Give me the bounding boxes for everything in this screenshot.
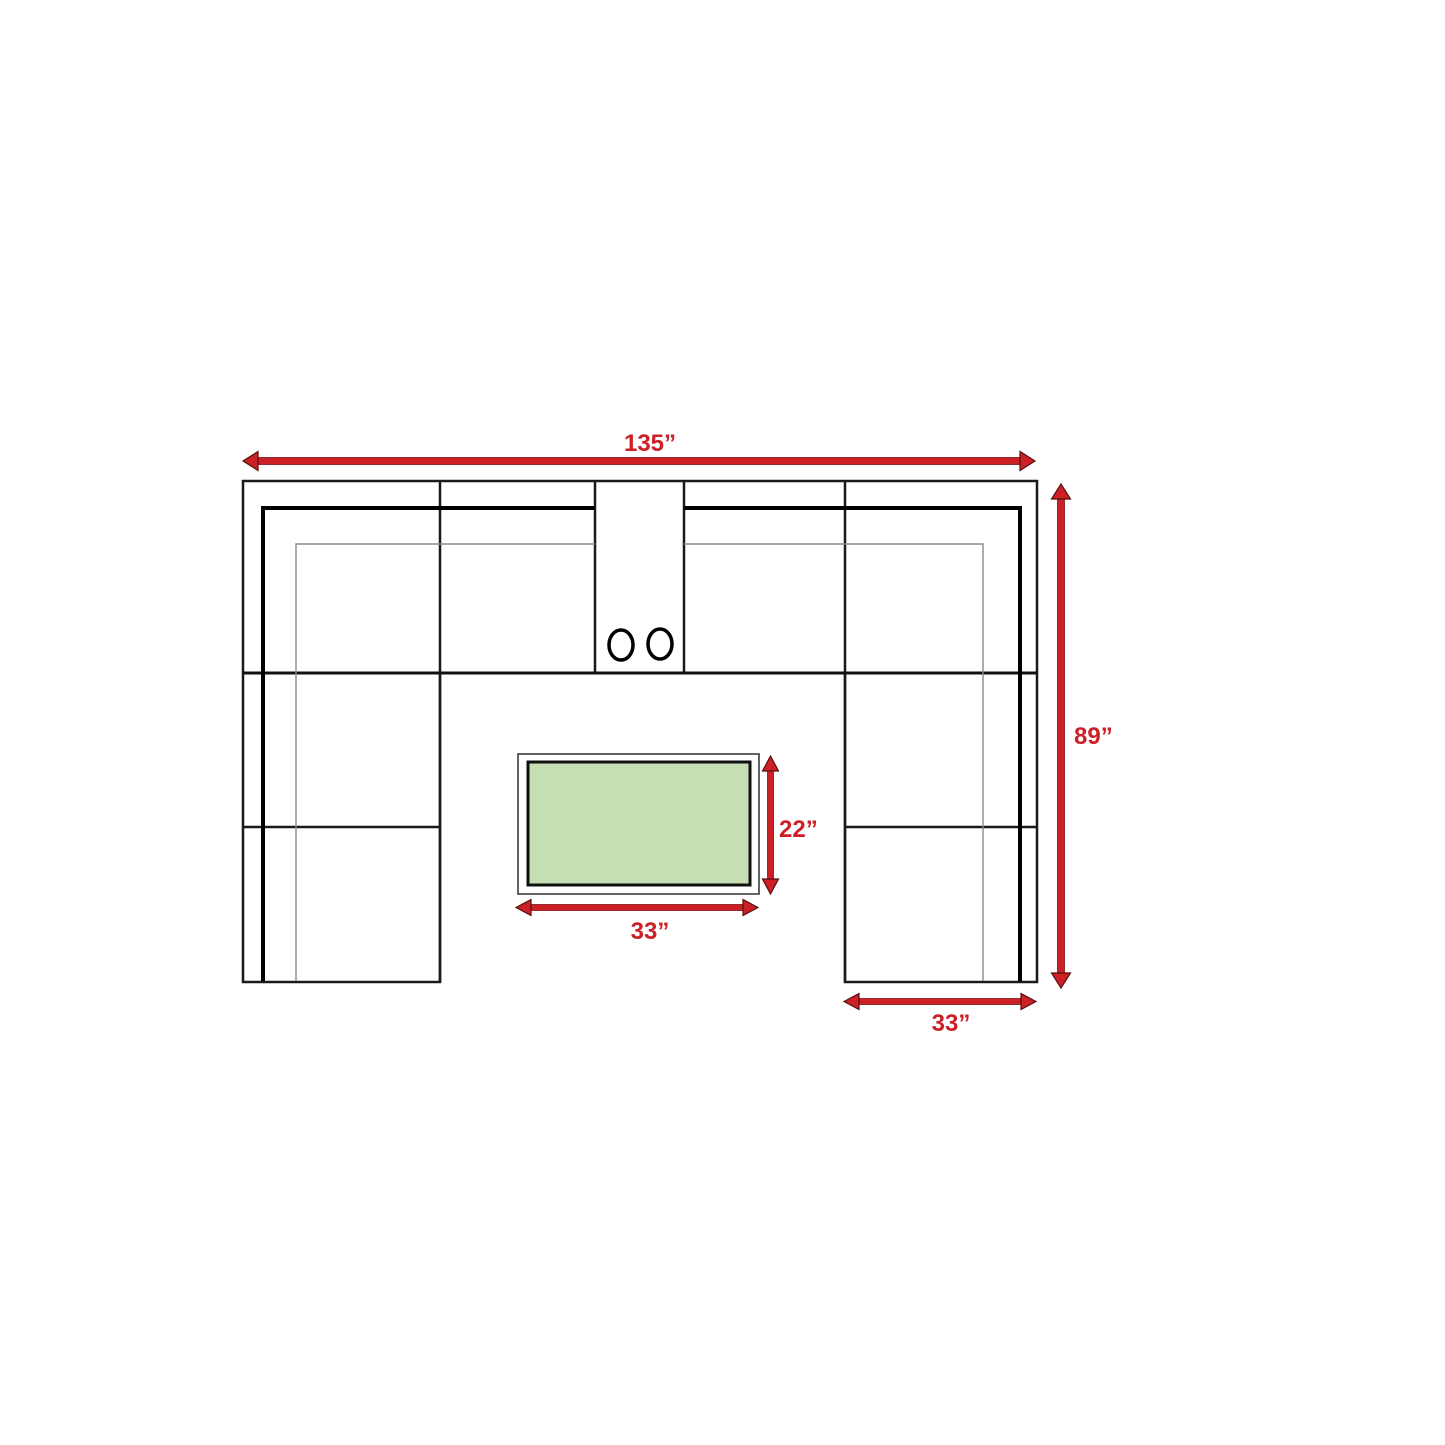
coffee-table: [518, 754, 759, 894]
table-depth-label: 22”: [779, 816, 818, 843]
arrowhead-down-icon: [763, 879, 779, 894]
arrowhead-down-icon: [1052, 973, 1071, 988]
arrow-bar: [256, 458, 1022, 465]
arrowhead-up-icon: [763, 756, 779, 771]
sectional-dimension-diagram: 135” 89” 22” 33”: [0, 0, 1445, 1445]
arm-section-width-label: 33”: [932, 1010, 971, 1037]
arm-section-width-arrow: [844, 994, 1036, 1010]
arrowhead-right-icon: [1021, 994, 1036, 1010]
table-width-arrow: [516, 900, 758, 916]
cupholder-left: [609, 630, 633, 660]
overall-width-label: 135”: [624, 430, 676, 457]
arrow-bar: [1058, 497, 1065, 974]
arrowhead-right-icon: [743, 900, 758, 916]
arrow-bar: [768, 769, 774, 881]
arrow-bar: [529, 905, 745, 911]
cupholder-right: [648, 629, 672, 659]
table-depth-arrow: [763, 756, 779, 894]
arrow-bar: [857, 999, 1023, 1005]
arrowhead-right-icon: [1020, 452, 1035, 471]
arrowhead-left-icon: [243, 452, 258, 471]
overall-depth-label: 89”: [1074, 723, 1113, 750]
table-width-label: 33”: [631, 918, 670, 945]
arrowhead-left-icon: [844, 994, 859, 1010]
coffee-table-top: [528, 762, 750, 885]
diagram-canvas: 135” 89” 22” 33”: [0, 0, 1445, 1445]
arrowhead-left-icon: [516, 900, 531, 916]
arrowhead-up-icon: [1052, 484, 1071, 499]
overall-depth-arrow: [1052, 484, 1071, 988]
